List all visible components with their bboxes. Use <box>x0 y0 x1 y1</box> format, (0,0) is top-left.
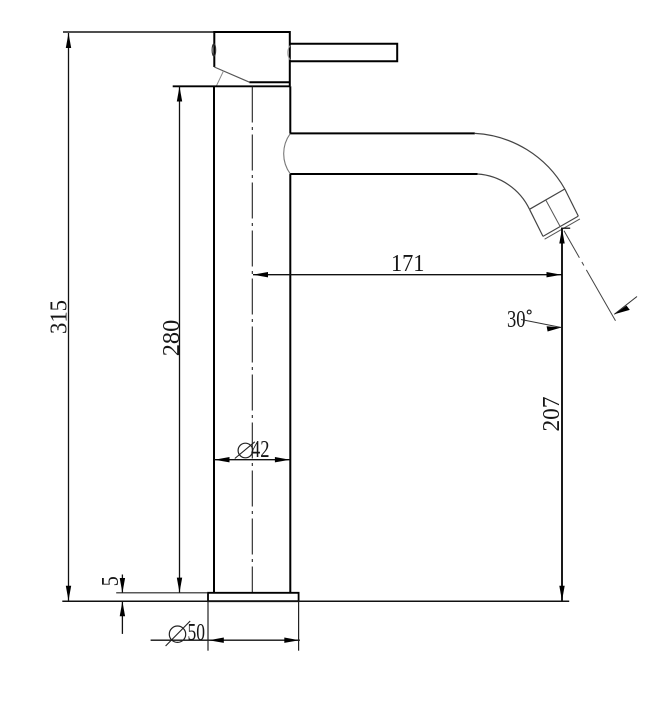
svg-text:280: 280 <box>159 320 185 357</box>
svg-text:5: 5 <box>98 576 124 586</box>
svg-text:42: 42 <box>251 437 270 463</box>
svg-text:315: 315 <box>46 300 72 334</box>
svg-text:207: 207 <box>539 397 565 432</box>
svg-text:50: 50 <box>188 620 206 646</box>
svg-text:171: 171 <box>391 251 425 277</box>
